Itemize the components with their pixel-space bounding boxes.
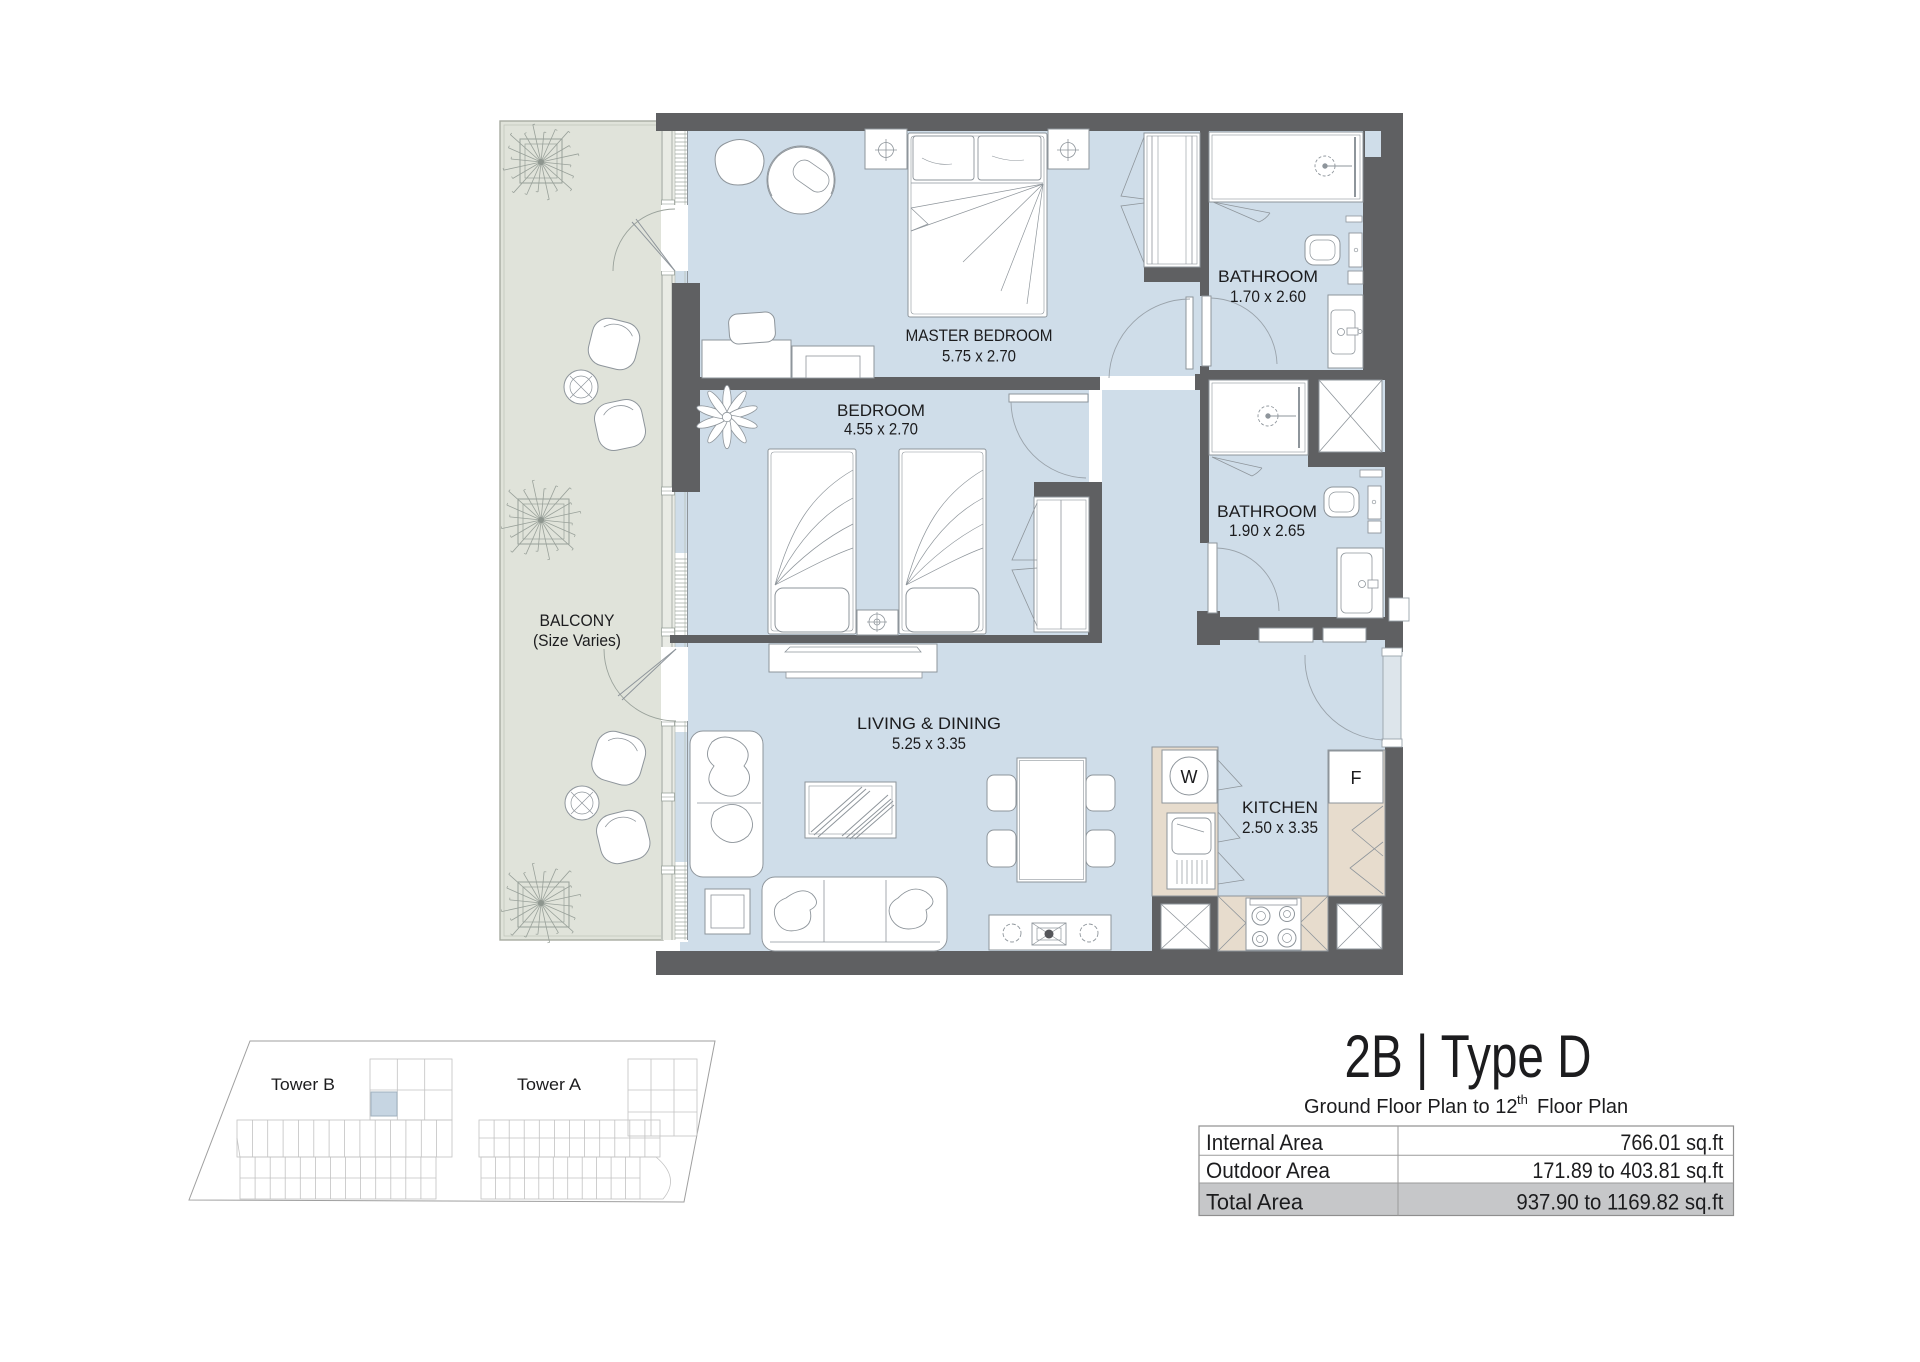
svg-text:1.70 x 2.60: 1.70 x 2.60	[1230, 288, 1306, 306]
svg-text:Total Area: Total Area	[1206, 1190, 1304, 1215]
svg-text:Tower B: Tower B	[271, 1075, 335, 1094]
svg-text:937.90 to 1169.82 sq.ft: 937.90 to 1169.82 sq.ft	[1516, 1190, 1723, 1215]
svg-text:Floor Plan: Floor Plan	[1537, 1096, 1628, 1118]
svg-text:BEDROOM: BEDROOM	[837, 402, 925, 420]
svg-text:th: th	[1517, 1092, 1528, 1107]
svg-text:BATHROOM: BATHROOM	[1218, 268, 1318, 286]
svg-text:4.55 x 2.70: 4.55 x 2.70	[844, 421, 918, 439]
svg-text:Ground Floor Plan to 12: Ground Floor Plan to 12	[1304, 1096, 1517, 1118]
svg-text:(Size Varies): (Size Varies)	[533, 632, 621, 650]
svg-text:2.50 x 3.35: 2.50 x 3.35	[1242, 819, 1318, 837]
svg-text:KITCHEN: KITCHEN	[1242, 799, 1318, 817]
svg-text:766.01 sq.ft: 766.01 sq.ft	[1620, 1130, 1723, 1155]
svg-text:5.25 x 3.35: 5.25 x 3.35	[892, 735, 966, 753]
svg-text:171.89 to 403.81 sq.ft: 171.89 to 403.81 sq.ft	[1532, 1158, 1723, 1183]
svg-text:Internal Area: Internal Area	[1206, 1130, 1324, 1155]
svg-text:Tower A: Tower A	[517, 1075, 582, 1094]
svg-text:W: W	[1181, 767, 1198, 787]
svg-text:1.90 x 2.65: 1.90 x 2.65	[1229, 522, 1305, 540]
svg-text:LIVING & DINING: LIVING & DINING	[857, 715, 1001, 733]
svg-text:MASTER BEDROOM: MASTER BEDROOM	[906, 327, 1053, 345]
svg-text:Outdoor Area: Outdoor Area	[1206, 1158, 1331, 1183]
svg-text:BATHROOM: BATHROOM	[1217, 503, 1317, 521]
svg-text:F: F	[1351, 768, 1362, 788]
svg-text:BALCONY: BALCONY	[540, 612, 615, 630]
svg-text:2B | Type D: 2B | Type D	[1345, 1023, 1592, 1090]
svg-text:5.75 x 2.70: 5.75 x 2.70	[942, 348, 1016, 366]
